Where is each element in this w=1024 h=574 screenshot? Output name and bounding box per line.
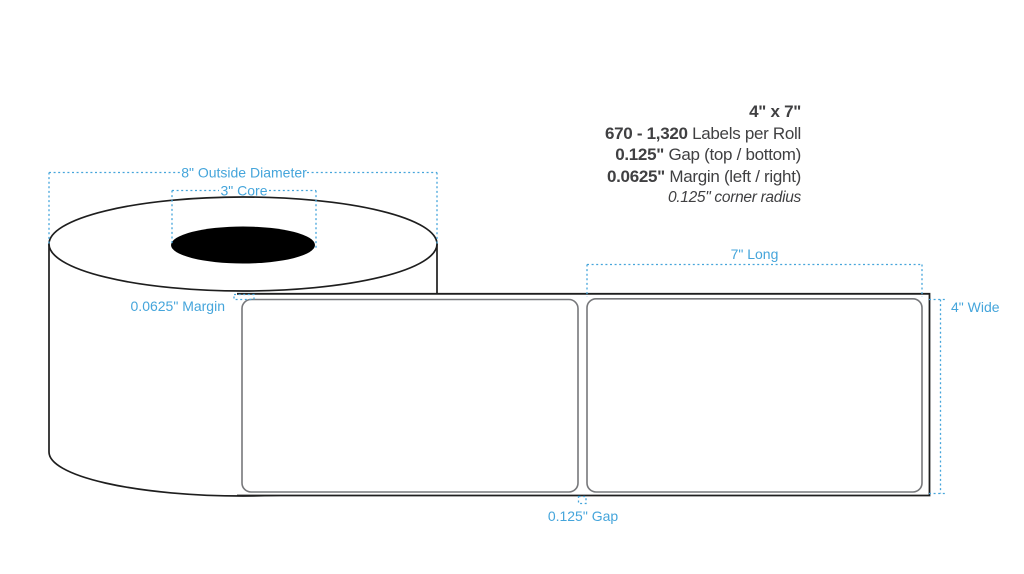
width-label: 4" Wide <box>951 299 1000 315</box>
length-label: 7" Long <box>731 246 779 262</box>
label-roll-diagram: 8" Outside Diameter 3" Core 0.0625" Marg… <box>0 0 1024 574</box>
outside-diameter-label: 8" Outside Diameter <box>181 165 307 181</box>
roll-core-hole <box>171 227 315 264</box>
gap-label: 0.125" Gap <box>548 508 619 524</box>
core-label: 3" Core <box>221 183 268 199</box>
label-1 <box>242 300 578 493</box>
margin-label: 0.0625" Margin <box>131 298 225 314</box>
gap-dimension-bracket <box>579 497 587 504</box>
label-2 <box>587 299 922 492</box>
